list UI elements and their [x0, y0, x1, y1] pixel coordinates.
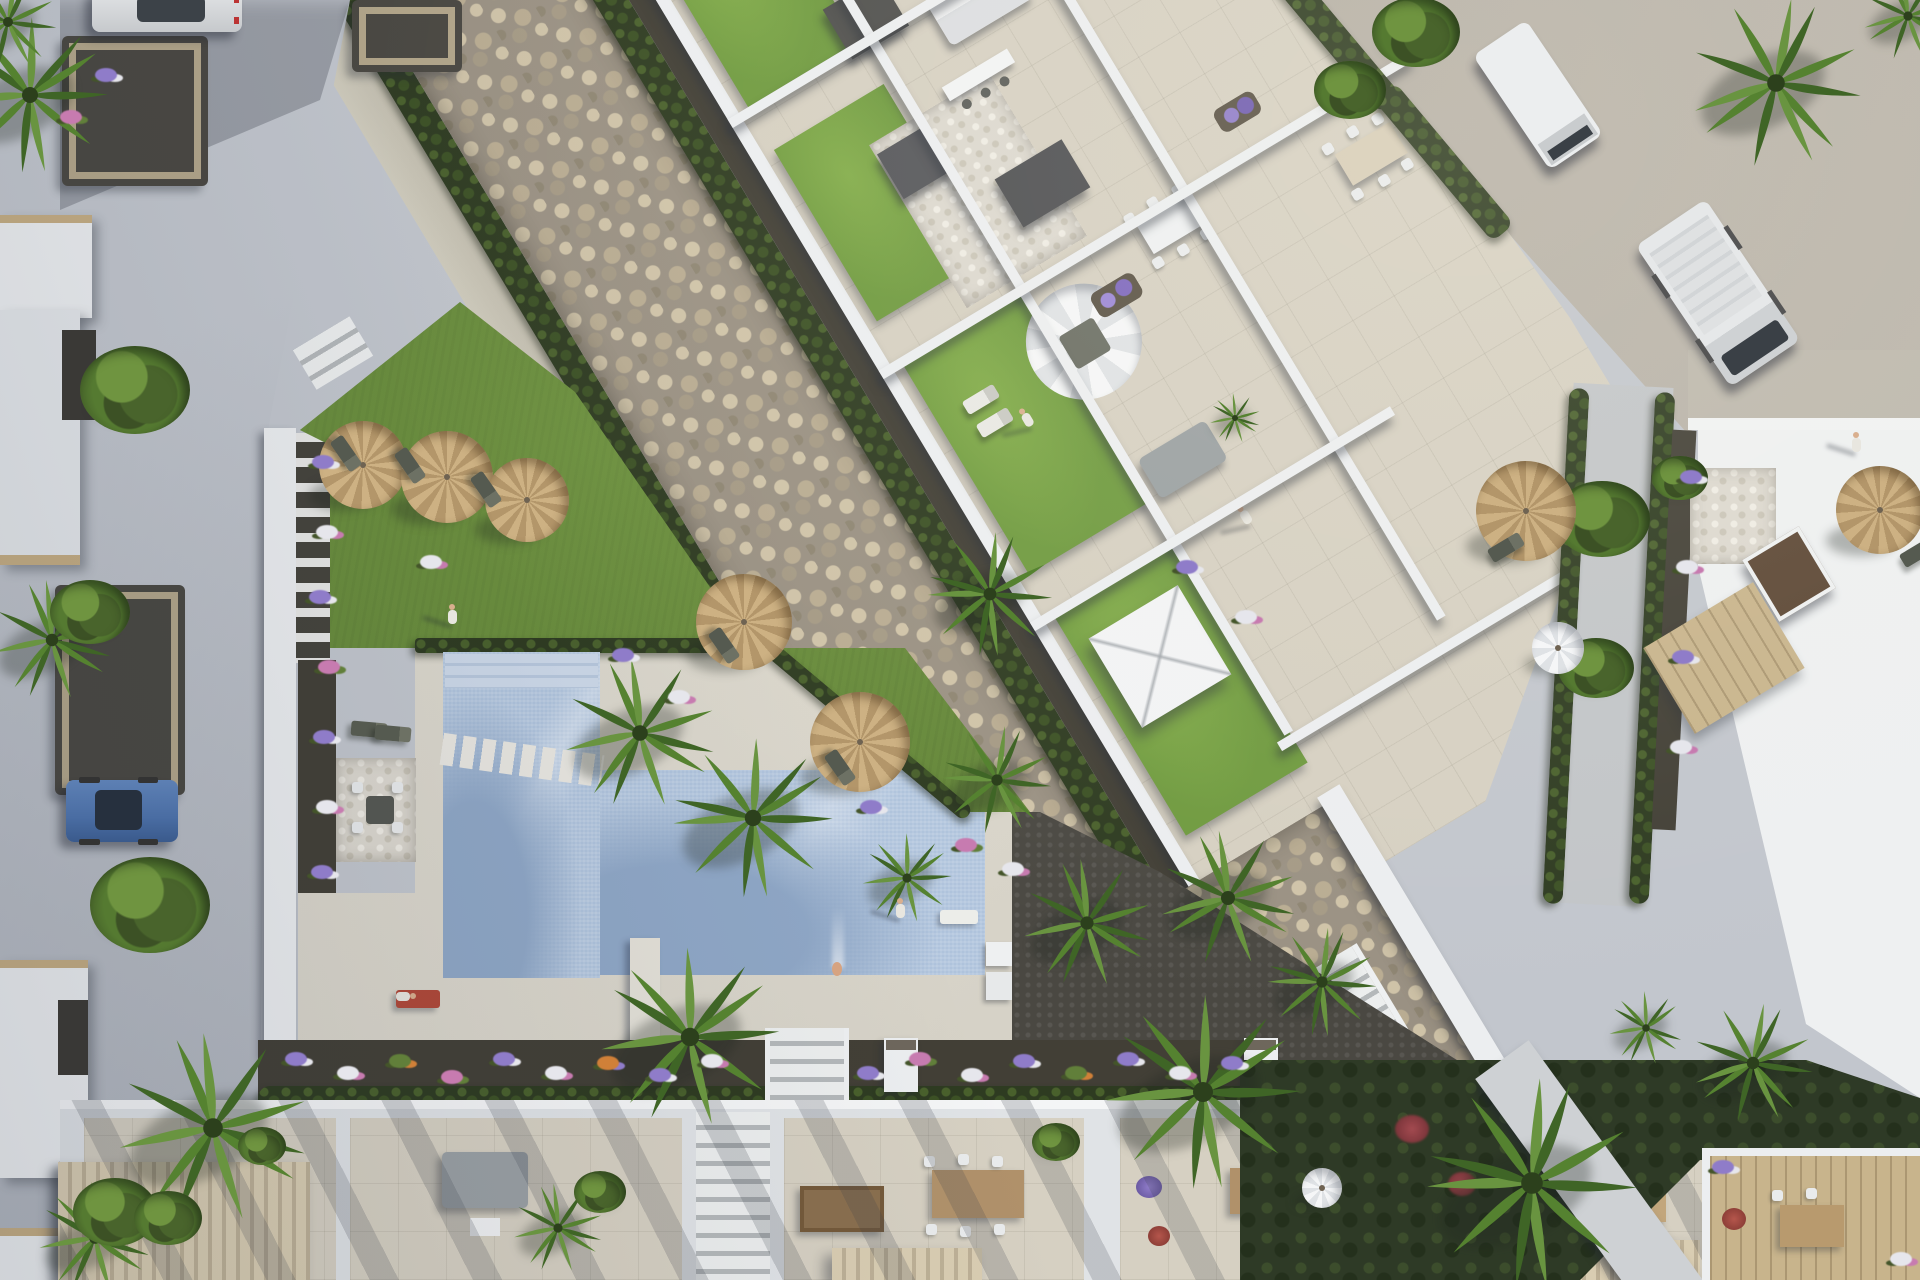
flower-cluster	[318, 660, 340, 674]
flower-cluster	[1676, 560, 1698, 574]
flower-cluster	[337, 1066, 359, 1080]
flower-cluster	[1013, 1054, 1035, 1068]
parked-white-car	[92, 0, 242, 32]
flower-cluster	[649, 1068, 671, 1082]
flower-cluster	[1712, 1160, 1734, 1174]
flower-cluster	[1169, 1066, 1191, 1080]
bush	[50, 580, 130, 644]
palm-tree	[0, 0, 58, 72]
bush	[1314, 61, 1386, 119]
flower-cluster	[1002, 862, 1024, 876]
bush	[238, 1127, 286, 1165]
bush	[1032, 1123, 1080, 1161]
aerial-render-scene	[0, 0, 1920, 1280]
flower-cluster	[860, 800, 882, 814]
flower-cluster	[668, 690, 690, 704]
flower-cluster	[1221, 1056, 1243, 1070]
palm-tree	[1608, 990, 1684, 1066]
bush	[90, 857, 210, 953]
bush	[1372, 0, 1460, 67]
flower-cluster	[1176, 560, 1198, 574]
palm-tree	[1021, 857, 1153, 989]
flower-cluster	[95, 68, 117, 82]
straw-parasol	[810, 692, 910, 792]
palm-tree	[671, 736, 835, 900]
white-van	[1636, 199, 1801, 387]
straw-parasol	[1836, 466, 1920, 554]
palm-tree	[1691, 1001, 1815, 1125]
flower-cluster	[1235, 610, 1257, 624]
sun-lounger	[374, 724, 411, 742]
vegetation-and-props-layer	[0, 0, 1920, 1280]
palm-tree	[1862, 0, 1920, 62]
flower-cluster	[285, 1052, 307, 1066]
flower-cluster	[60, 110, 82, 124]
flower-cluster	[493, 1052, 515, 1066]
flower-cluster	[955, 838, 977, 852]
flower-cluster	[1670, 740, 1692, 754]
flower-cluster	[909, 1052, 931, 1066]
flower-cluster	[597, 1056, 619, 1070]
palm-tree	[598, 945, 782, 1129]
white-box-truck	[1473, 20, 1603, 170]
palm-tree	[941, 724, 1053, 836]
flower-cluster	[1680, 470, 1702, 484]
parked-blue-car	[66, 780, 178, 842]
flower-cluster	[316, 525, 338, 539]
flower-cluster	[545, 1066, 567, 1080]
bush	[134, 1191, 202, 1245]
flower-cluster	[312, 455, 334, 469]
bush	[574, 1171, 626, 1213]
flower-cluster	[316, 800, 338, 814]
palm-tree	[1424, 1075, 1640, 1280]
flower-cluster	[857, 1066, 879, 1080]
flower-cluster	[612, 648, 634, 662]
flower-cluster	[311, 865, 333, 879]
flower-cluster	[961, 1068, 983, 1082]
flower-cluster	[701, 1054, 723, 1068]
palm-tree	[926, 530, 1054, 658]
palm-tree	[1209, 392, 1261, 444]
bush	[80, 346, 190, 434]
straw-parasol	[696, 574, 792, 670]
flower-cluster	[441, 1070, 463, 1084]
flower-cluster	[389, 1054, 411, 1068]
flower-cluster	[309, 590, 331, 604]
white-parasol	[1302, 1168, 1342, 1208]
flower-cluster	[313, 730, 335, 744]
flower-cluster	[1672, 650, 1694, 664]
flower-cluster	[1065, 1066, 1087, 1080]
palm-tree	[1688, 0, 1864, 171]
straw-parasol	[1476, 461, 1576, 561]
flower-cluster	[1117, 1052, 1139, 1066]
flower-cluster	[420, 555, 442, 569]
flower-cluster	[1890, 1252, 1912, 1266]
white-parasol	[1532, 622, 1584, 674]
palm-tree	[1266, 926, 1378, 1038]
